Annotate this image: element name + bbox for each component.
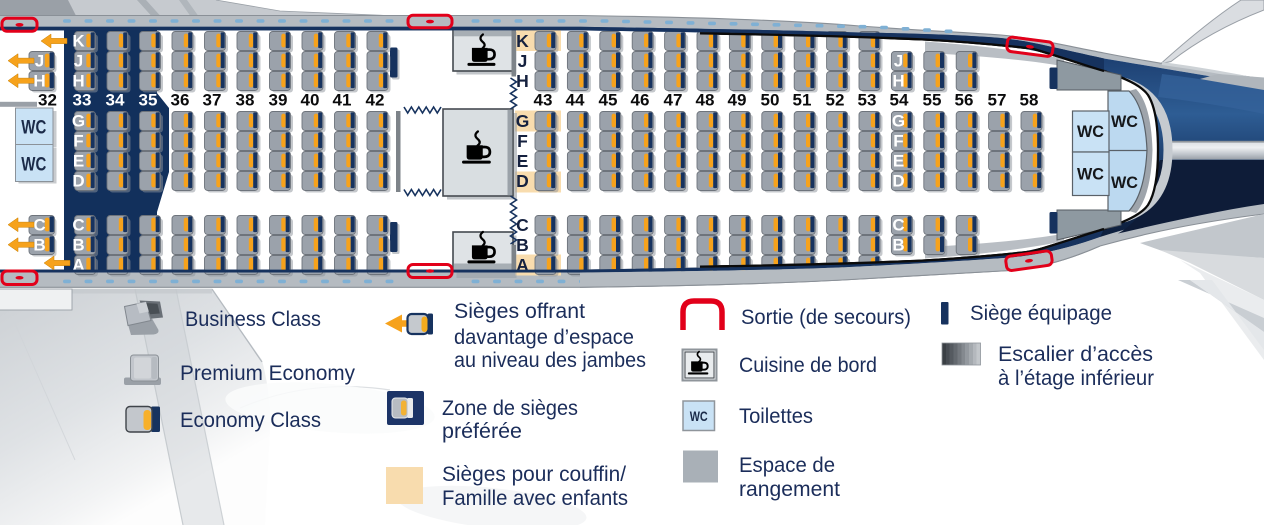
svg-text:49: 49 — [728, 91, 747, 110]
svg-text:B: B — [892, 236, 904, 255]
svg-text:WC: WC — [1077, 165, 1104, 184]
svg-text:Sortie (de secours): Sortie (de secours) — [741, 306, 911, 329]
svg-text:D: D — [892, 172, 904, 191]
svg-text:Espace de: Espace de — [739, 454, 835, 477]
svg-text:C: C — [72, 216, 84, 235]
svg-text:50: 50 — [761, 91, 780, 110]
svg-text:Sièges pour couffin/: Sièges pour couffin/ — [442, 463, 626, 486]
svg-text:H: H — [33, 72, 45, 91]
svg-text:WC: WC — [1111, 112, 1138, 131]
svg-text:45: 45 — [599, 91, 618, 110]
svg-text:Premium Economy: Premium Economy — [180, 362, 355, 385]
svg-text:Business Class: Business Class — [185, 308, 321, 331]
svg-text:D: D — [516, 171, 529, 191]
svg-text:58: 58 — [1020, 91, 1039, 110]
svg-text:au niveau des jambes: au niveau des jambes — [454, 349, 646, 372]
svg-text:41: 41 — [333, 91, 352, 110]
svg-text:Escalier d’accès: Escalier d’accès — [998, 343, 1153, 366]
svg-text:WC: WC — [21, 155, 46, 176]
svg-text:H: H — [72, 72, 84, 91]
svg-text:E: E — [517, 151, 529, 171]
svg-text:C: C — [33, 216, 45, 235]
svg-text:53: 53 — [858, 91, 877, 110]
svg-text:54: 54 — [890, 91, 909, 110]
svg-text:J: J — [894, 52, 903, 71]
svg-text:40: 40 — [301, 91, 320, 110]
svg-text:H: H — [892, 72, 904, 91]
svg-text:C: C — [516, 215, 529, 235]
svg-text:42: 42 — [366, 91, 385, 110]
svg-text:WC: WC — [1077, 122, 1104, 141]
svg-text:K: K — [72, 32, 85, 51]
svg-text:J: J — [518, 51, 528, 71]
svg-text:34: 34 — [106, 91, 125, 110]
svg-text:55: 55 — [923, 91, 942, 110]
svg-text:à l’étage inférieur: à l’étage inférieur — [998, 367, 1154, 390]
svg-text:B: B — [33, 236, 45, 255]
svg-text:Siège équipage: Siège équipage — [970, 302, 1112, 325]
svg-text:47: 47 — [664, 91, 683, 110]
svg-text:36: 36 — [171, 91, 190, 110]
svg-text:Economy Class: Economy Class — [180, 409, 321, 432]
svg-text:WC: WC — [21, 118, 46, 139]
svg-text:33: 33 — [73, 91, 92, 110]
svg-text:39: 39 — [269, 91, 288, 110]
svg-text:K: K — [516, 31, 529, 51]
svg-text:38: 38 — [236, 91, 255, 110]
svg-text:43: 43 — [534, 91, 553, 110]
svg-text:F: F — [517, 131, 528, 151]
svg-text:J: J — [74, 52, 83, 71]
svg-text:B: B — [72, 236, 84, 255]
svg-text:F: F — [73, 132, 83, 151]
svg-text:Sièges offrant: Sièges offrant — [454, 300, 585, 323]
svg-text:37: 37 — [203, 91, 222, 110]
svg-text:J: J — [35, 52, 44, 71]
svg-text:WC: WC — [690, 409, 708, 424]
svg-text:32: 32 — [38, 91, 57, 110]
svg-text:G: G — [72, 112, 85, 131]
svg-text:C: C — [892, 216, 904, 235]
svg-text:56: 56 — [955, 91, 974, 110]
svg-text:rangement: rangement — [739, 478, 840, 501]
svg-text:35: 35 — [139, 91, 158, 110]
svg-text:Toilettes: Toilettes — [739, 405, 813, 428]
svg-text:48: 48 — [696, 91, 715, 110]
svg-text:D: D — [72, 172, 84, 191]
svg-text:Cuisine de bord: Cuisine de bord — [739, 354, 877, 377]
svg-text:davantage d’espace: davantage d’espace — [454, 326, 634, 349]
svg-text:E: E — [893, 152, 904, 171]
svg-text:46: 46 — [631, 91, 650, 110]
svg-text:G: G — [892, 112, 905, 131]
svg-text:52: 52 — [826, 91, 845, 110]
svg-text:Zone de sièges: Zone de sièges — [442, 397, 578, 420]
svg-text:44: 44 — [566, 91, 585, 110]
svg-text:préférée: préférée — [442, 420, 522, 443]
svg-text:G: G — [516, 111, 530, 131]
svg-text:51: 51 — [793, 91, 812, 110]
svg-text:E: E — [73, 152, 84, 171]
svg-text:B: B — [516, 235, 529, 255]
svg-text:F: F — [893, 132, 903, 151]
svg-text:H: H — [516, 71, 529, 91]
svg-text:Famille avec enfants: Famille avec enfants — [442, 487, 628, 510]
svg-text:WC: WC — [1111, 173, 1138, 192]
svg-text:57: 57 — [988, 91, 1007, 110]
